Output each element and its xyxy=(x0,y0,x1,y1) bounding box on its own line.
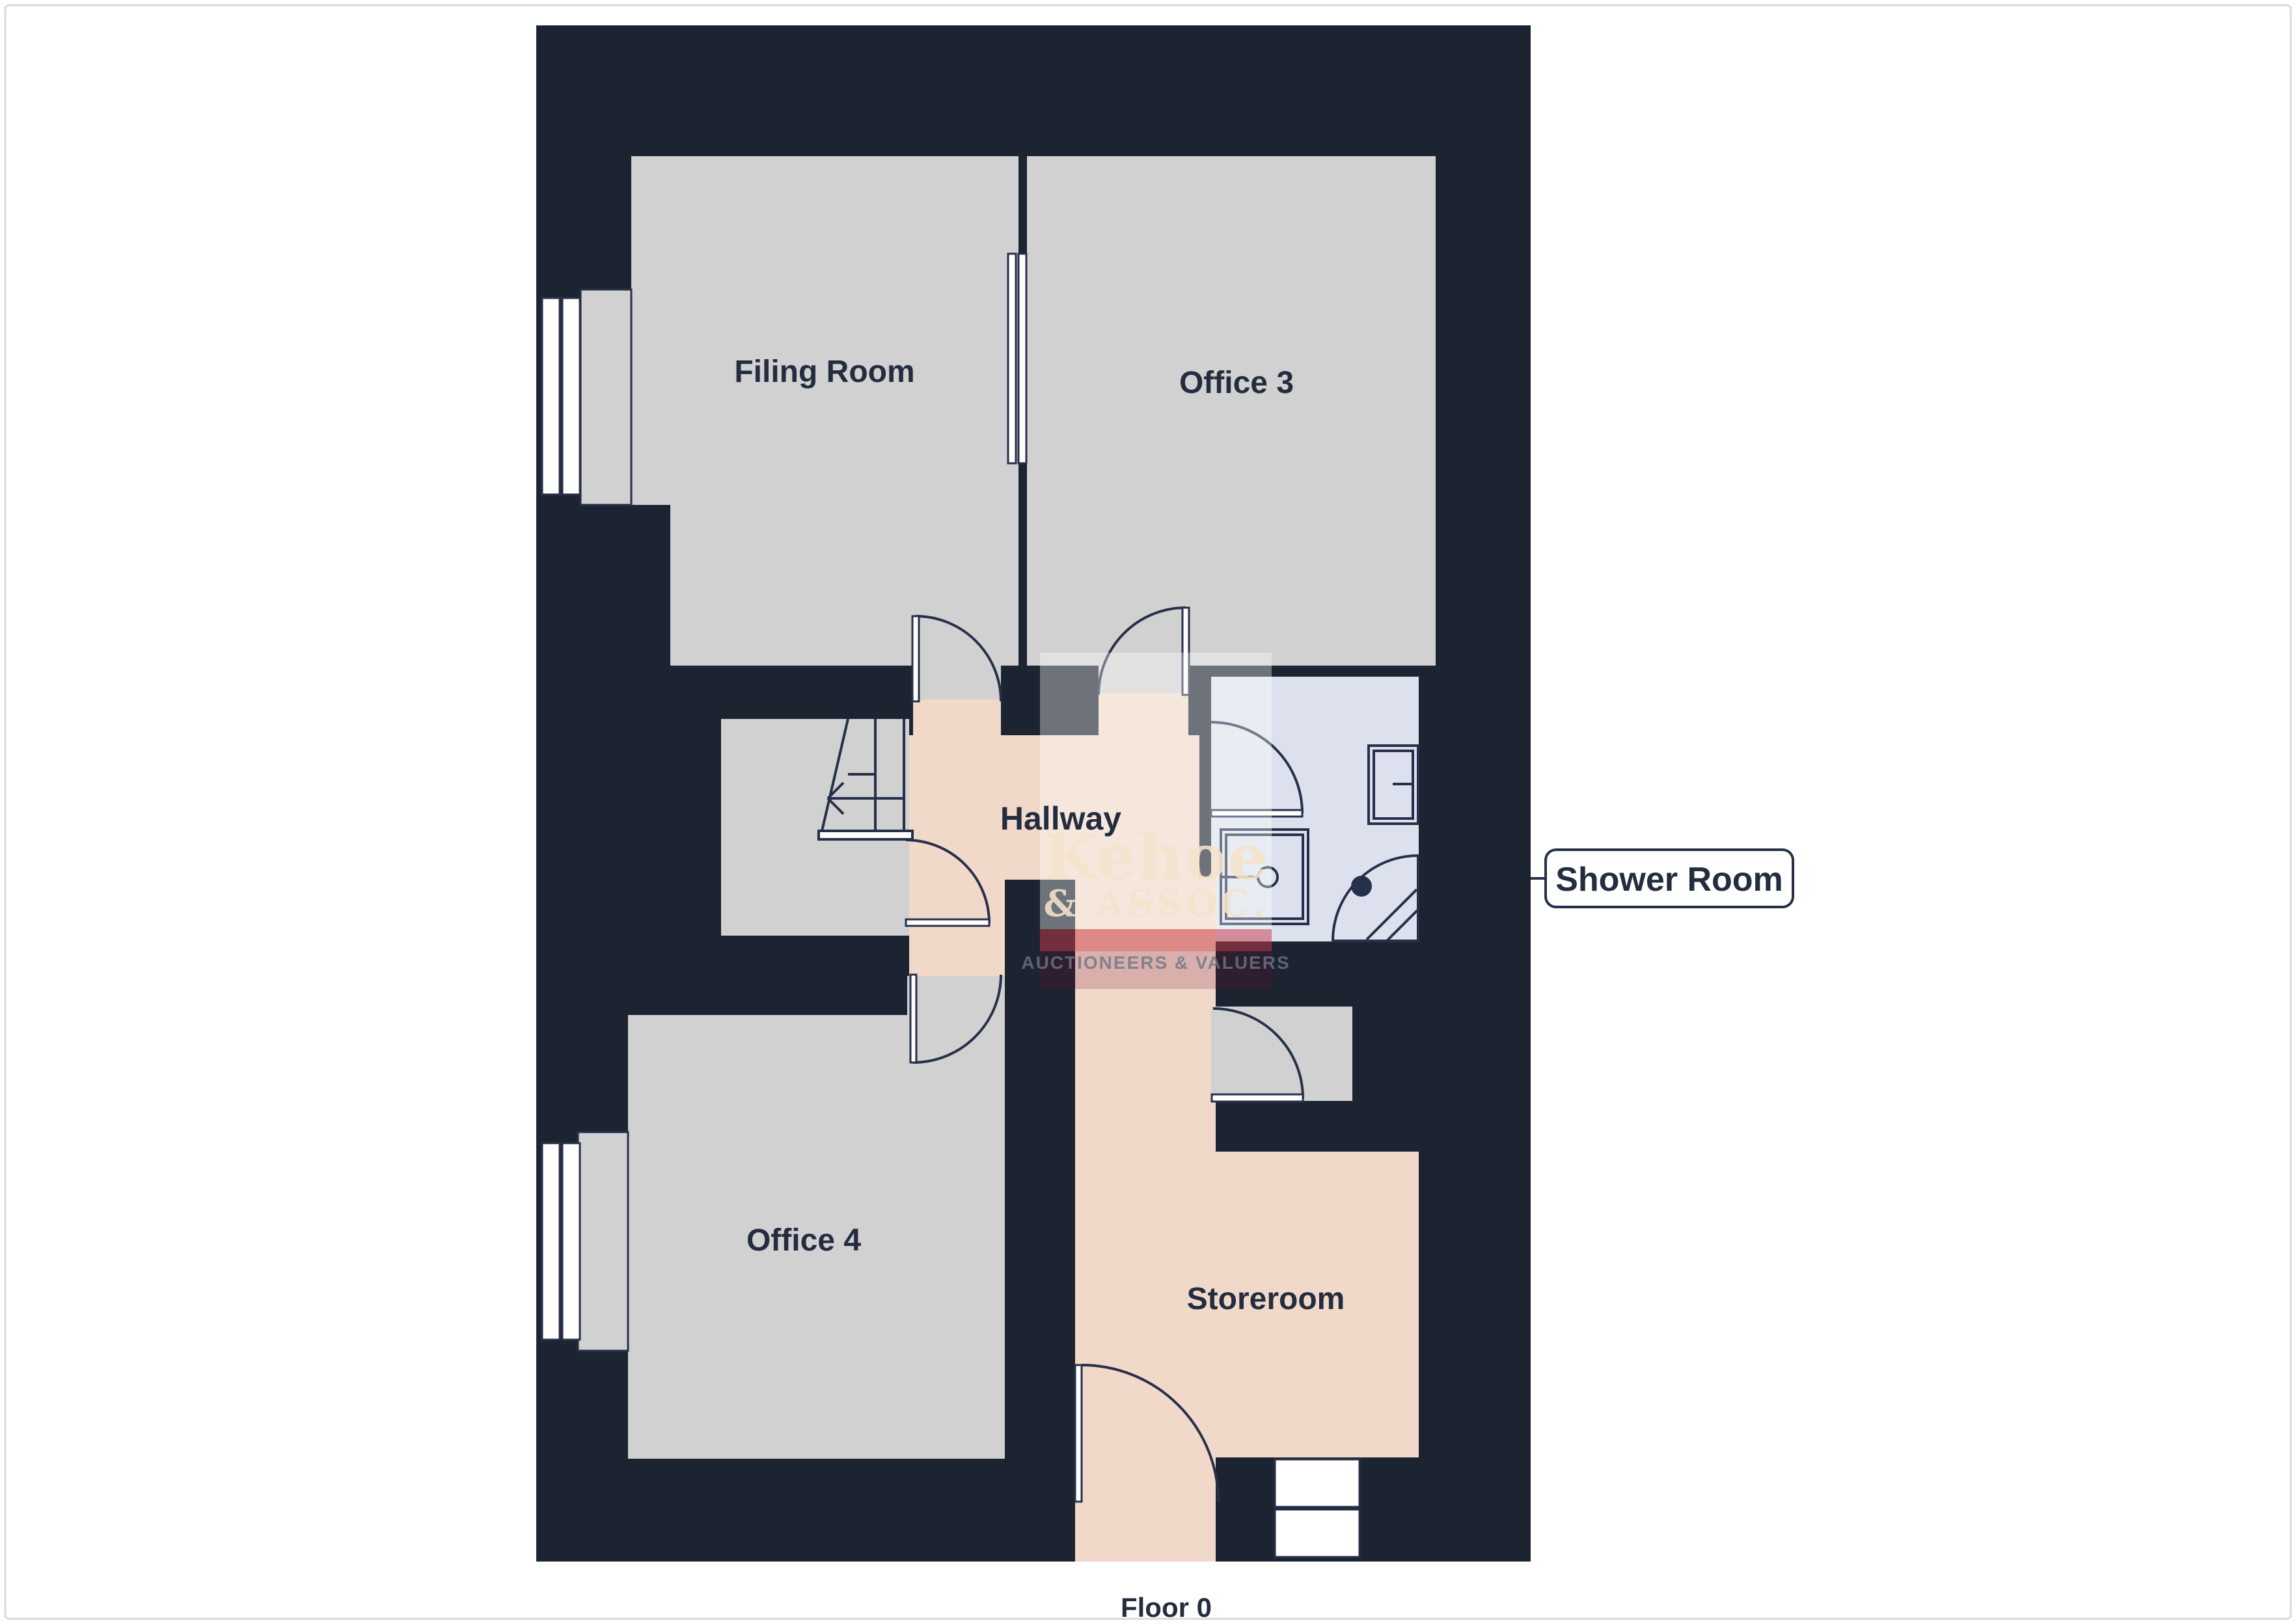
label-hallway: Hallway xyxy=(1000,800,1121,837)
office4-window-pane-1 xyxy=(542,1143,560,1340)
watermark-brand-line2: & ASSOC. xyxy=(1043,882,1268,925)
label-shower-room: Shower Room xyxy=(1555,861,1783,899)
floor-caption: Floor 0 xyxy=(1121,1592,1212,1623)
room-stairwell xyxy=(721,719,909,936)
rear-lobby-door-leaf xyxy=(1212,1094,1303,1102)
partition-window-pane-1 xyxy=(1008,254,1016,463)
watermark-tagline: AUCTIONEERS & VALUERS xyxy=(1021,953,1290,973)
room-office3 xyxy=(1027,156,1436,695)
hallway-office4-approach xyxy=(909,878,1005,977)
shower-head-dot xyxy=(1352,877,1371,895)
label-office4: Office 4 xyxy=(746,1223,861,1258)
label-office3: Office 3 xyxy=(1179,366,1294,400)
label-filing-room: Filing Room xyxy=(734,355,914,389)
storeroom-window-pane-bottom xyxy=(1275,1509,1360,1557)
room-office4 xyxy=(628,976,1005,1459)
filing-door-leaf xyxy=(912,616,919,701)
stairwell-door-leaf xyxy=(906,919,989,926)
partition-window-pane-2 xyxy=(1018,254,1026,463)
entrance-door-leaf xyxy=(1075,1365,1082,1502)
stairs-landing-bar xyxy=(819,831,912,839)
shower-room-callout: Shower Room xyxy=(1531,850,1793,907)
label-storeroom: Storeroom xyxy=(1187,1282,1345,1316)
rear-lobby xyxy=(1211,1007,1352,1101)
office4-window-pane-2 xyxy=(562,1143,580,1340)
office4-window-bay xyxy=(578,1132,628,1351)
filing-window-pane-1 xyxy=(542,298,560,494)
storeroom-window-pane-top xyxy=(1275,1459,1360,1507)
watermark-red-strip xyxy=(1040,929,1272,951)
floorplan-drawing: Kehoe & ASSOC. AUCTIONEERS & VALUERS Fil… xyxy=(0,0,2296,1624)
filing-window-bay xyxy=(581,290,631,505)
hallway-door-tongue-filing xyxy=(913,699,1001,738)
office4-door-leaf xyxy=(910,975,916,1062)
filing-window-pane-2 xyxy=(562,298,580,494)
floorplan-canvas: Kehoe & ASSOC. AUCTIONEERS & VALUERS Fil… xyxy=(0,0,2296,1624)
room-filing xyxy=(631,156,1018,701)
